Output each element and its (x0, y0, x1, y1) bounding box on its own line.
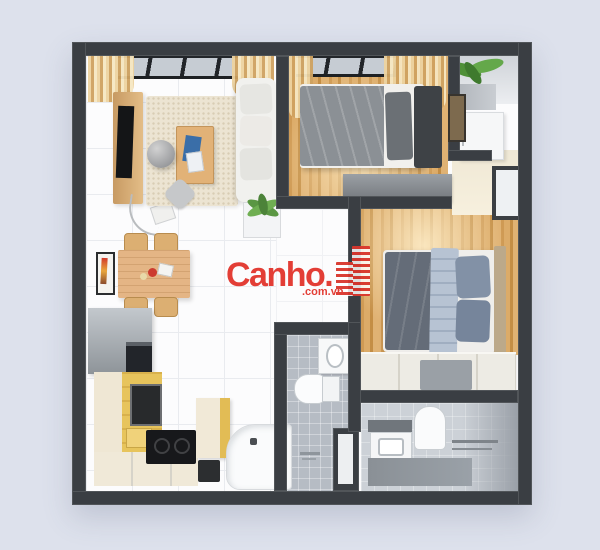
cooktop-burner-1 (154, 438, 170, 454)
bathroom2-vanity-counter (368, 420, 412, 432)
kitchen-oven-icon (126, 342, 152, 376)
beanbag-sphere (147, 140, 175, 168)
bathroom2-runner-mat (368, 458, 472, 486)
small-bedroom-wall-art-icon (448, 94, 466, 142)
watermark-building-icon (352, 246, 370, 296)
bowl-small (140, 273, 147, 280)
bathroom2-towel-bar-icon-2 (452, 448, 492, 450)
watermark-suffix: .com.vn (302, 287, 344, 298)
wall-bathroom1-right (348, 322, 361, 432)
wall-bathroom1-left (274, 322, 287, 491)
wall-outer-left (72, 42, 86, 505)
master-bed-pillow-1 (455, 255, 491, 299)
wall-outer-right (518, 42, 532, 505)
wall-outer-top (72, 42, 532, 56)
bathroom2-sink-icon (378, 438, 404, 456)
wall-master-bottom (348, 390, 518, 403)
tub-faucet-icon (250, 438, 257, 445)
bench-folded-blanket (420, 360, 472, 390)
bathroom1-door-icon (338, 434, 353, 484)
cooktop-burner-2 (174, 438, 190, 454)
magazine-white (186, 151, 205, 173)
watermark: Canho. .com.vn (220, 240, 390, 304)
kitchen-open-shelf (130, 384, 162, 426)
bathroom1-drain-icon-2 (302, 458, 316, 460)
living-window-icon (118, 56, 238, 79)
sofa-cushion-3 (239, 147, 272, 180)
plate-red (148, 268, 157, 277)
master-bed-pillow-2 (455, 299, 490, 342)
wall-living-bedroom (276, 56, 289, 204)
kitchen-counter-vertical (94, 372, 124, 456)
bathroom1-drain-icon (300, 452, 320, 455)
master-bed-blanket (385, 252, 433, 350)
floor-plan-image: Canho. .com.vn (0, 0, 600, 550)
wall-utility-bottom (448, 150, 492, 161)
bathroom2-towel-bar-icon (452, 440, 498, 443)
small-bed-headboard (414, 86, 442, 168)
kitchen-stool-dark (198, 460, 220, 482)
dining-chair-4 (154, 297, 178, 317)
tv-icon (116, 106, 135, 179)
master-bed-headboard (494, 246, 506, 354)
sofa-cushion-2 (239, 115, 272, 146)
bathroom1-sink-icon (326, 344, 344, 368)
wall-outer-bottom (72, 491, 532, 505)
small-bed-blanket (300, 86, 384, 166)
sofa-cushion-1 (239, 83, 273, 115)
bathroom2-toilet-icon (414, 406, 446, 450)
small-bed-pillow (385, 92, 413, 161)
bathroom1-toilet-tank (322, 376, 340, 402)
wall-bedroom-bottom (276, 196, 452, 209)
